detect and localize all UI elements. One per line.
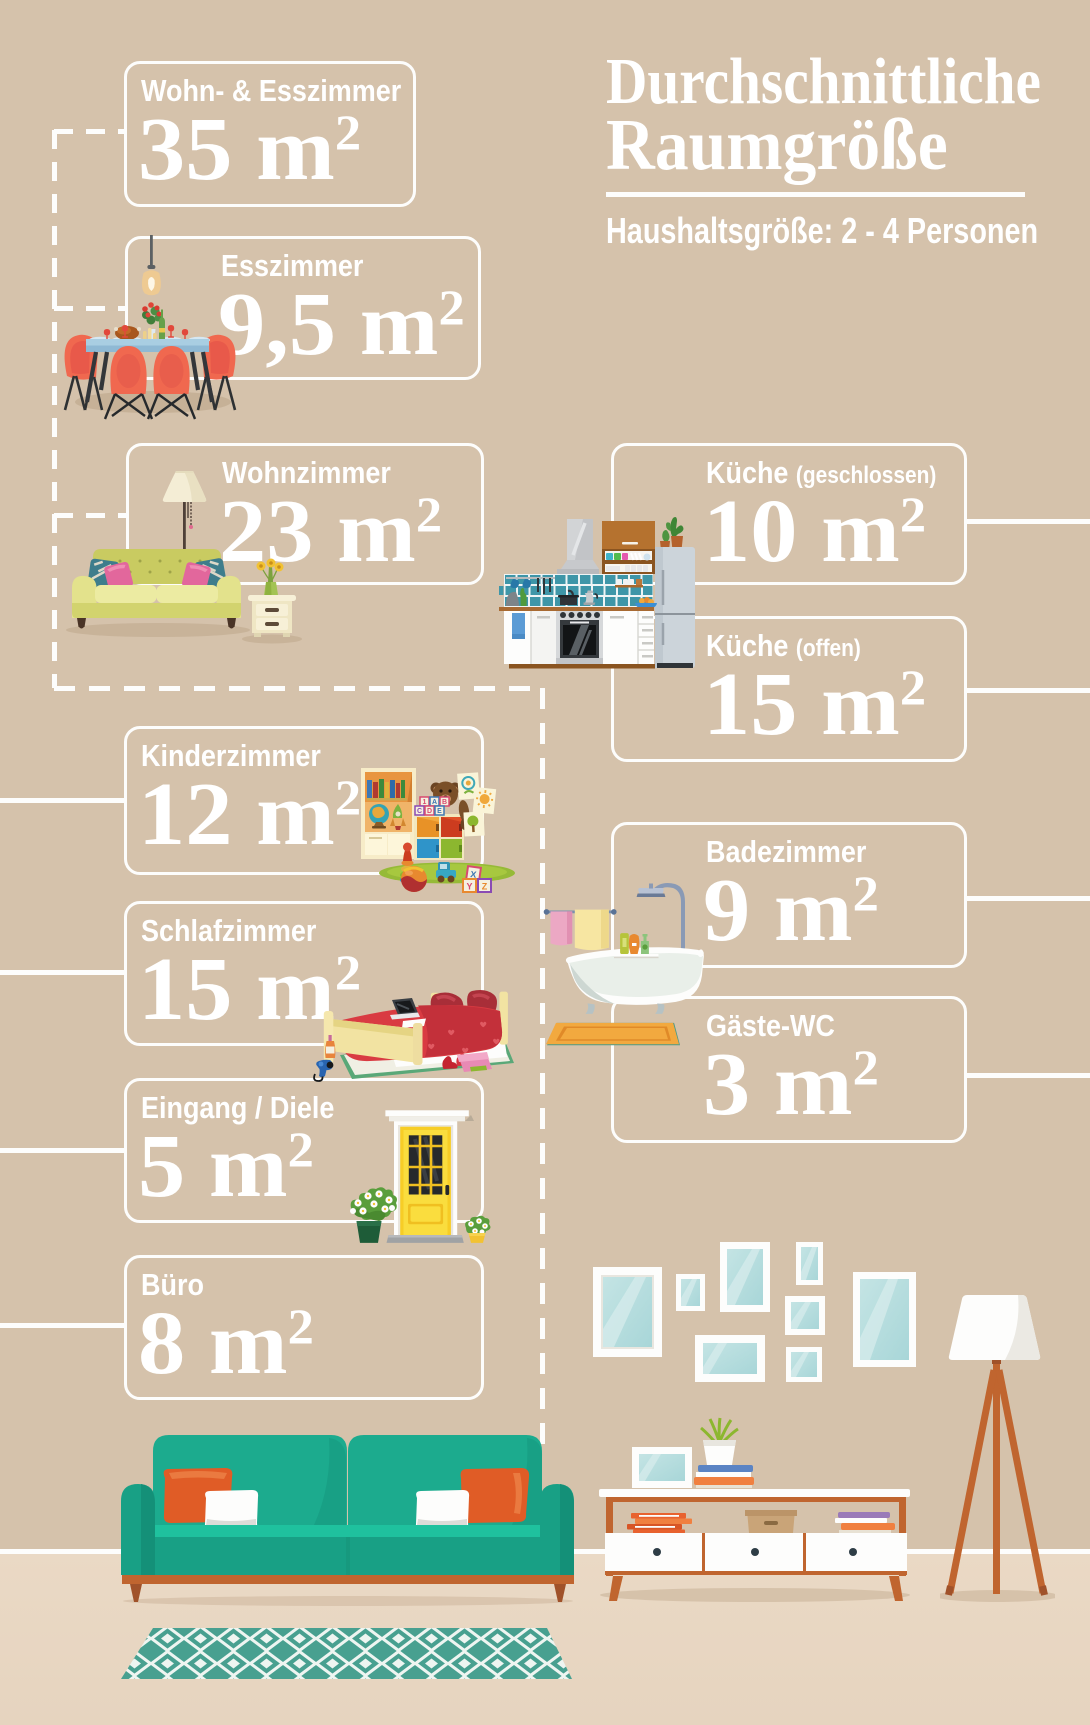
svg-text:1: 1: [423, 799, 427, 806]
svg-text:Z: Z: [482, 882, 488, 892]
svg-text:C: C: [417, 808, 422, 815]
svg-text:E: E: [437, 808, 442, 815]
svg-text:Y: Y: [466, 882, 472, 892]
svg-text:A: A: [432, 799, 437, 806]
svg-text:B: B: [442, 799, 447, 806]
svg-text:D: D: [427, 808, 432, 815]
